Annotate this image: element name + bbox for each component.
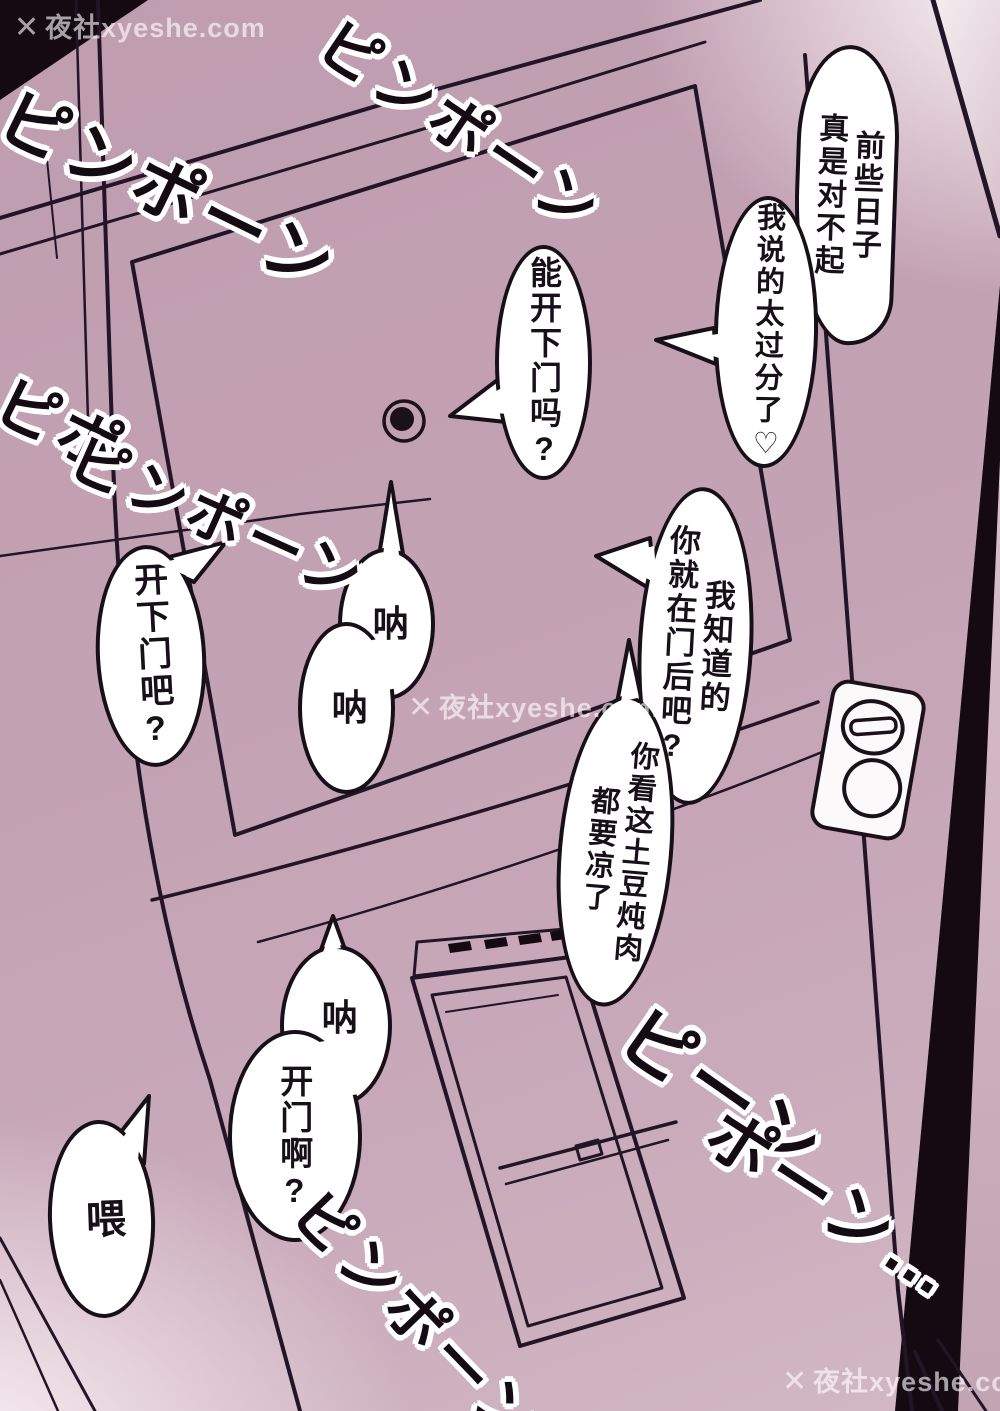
speech-text: 呐 (366, 605, 409, 644)
watermark-x-icon: ✕ (408, 691, 434, 724)
sfx-doorbell-top-center: ピンポーン (303, 0, 623, 251)
comic-page: 前些日子 真是对不起 我说的太过分了♡ 能开下门吗? 开下门吧? 呐 呐 我知道… (0, 0, 1000, 1411)
watermark-x-icon: ✕ (782, 1365, 808, 1398)
watermark-text: 夜社xyeshe.com (813, 1367, 1000, 1397)
speech-bubble-hey: 喂 (45, 1118, 159, 1320)
watermark-text: 夜社xyeshe.com (439, 693, 660, 723)
watermark-text: 夜社xyeshe.com (45, 13, 266, 43)
wall-right-strip (958, 460, 1000, 1411)
speech-text: 我知道的 你就在门后吧? (651, 523, 739, 769)
thumbturn-lock-icon (839, 697, 907, 759)
mail-slot-latch (576, 1140, 602, 1160)
speech-text: 前些日子 真是对不起 (807, 111, 886, 278)
watermark: ✕夜社xyeshe.com (14, 6, 266, 45)
speech-text: 我说的太过分了♡ (746, 201, 786, 463)
speech-text: 呐 (325, 689, 368, 728)
speech-text: 能开下门吗? (524, 256, 563, 470)
watermark: ✕夜社xyeshe.com (408, 686, 660, 725)
watermark-x-icon: ✕ (14, 11, 40, 44)
speech-text: 你看这土豆炖肉 都要凉了 (570, 736, 660, 965)
mail-slot-panel (412, 928, 684, 1346)
peephole-icon (384, 401, 424, 441)
mail-slot-vents (448, 929, 572, 953)
speech-bubble-can-you-open: 能开下门吗? (495, 245, 592, 480)
speech-text: 开门啊? (274, 1064, 314, 1212)
watermark: ✕夜社xyeshe.com (782, 1360, 1000, 1399)
speech-text: 呐 (315, 999, 358, 1038)
speech-bubble-apology-heart: 我说的太过分了♡ (712, 195, 821, 469)
doorknob-icon (840, 756, 905, 821)
speech-bubble-open-the-door: 开下门吧? (90, 542, 211, 769)
sfx-doorbell-bottom-center: ピンポーン (275, 1168, 565, 1411)
sfx-doorbell-top-left: ピンポーン (0, 62, 358, 312)
speech-text: 喂 (76, 1197, 126, 1242)
door-lock-plate (810, 679, 926, 841)
speech-text: 开下门吧? (125, 561, 176, 752)
wall-top-corner (933, 0, 1000, 236)
